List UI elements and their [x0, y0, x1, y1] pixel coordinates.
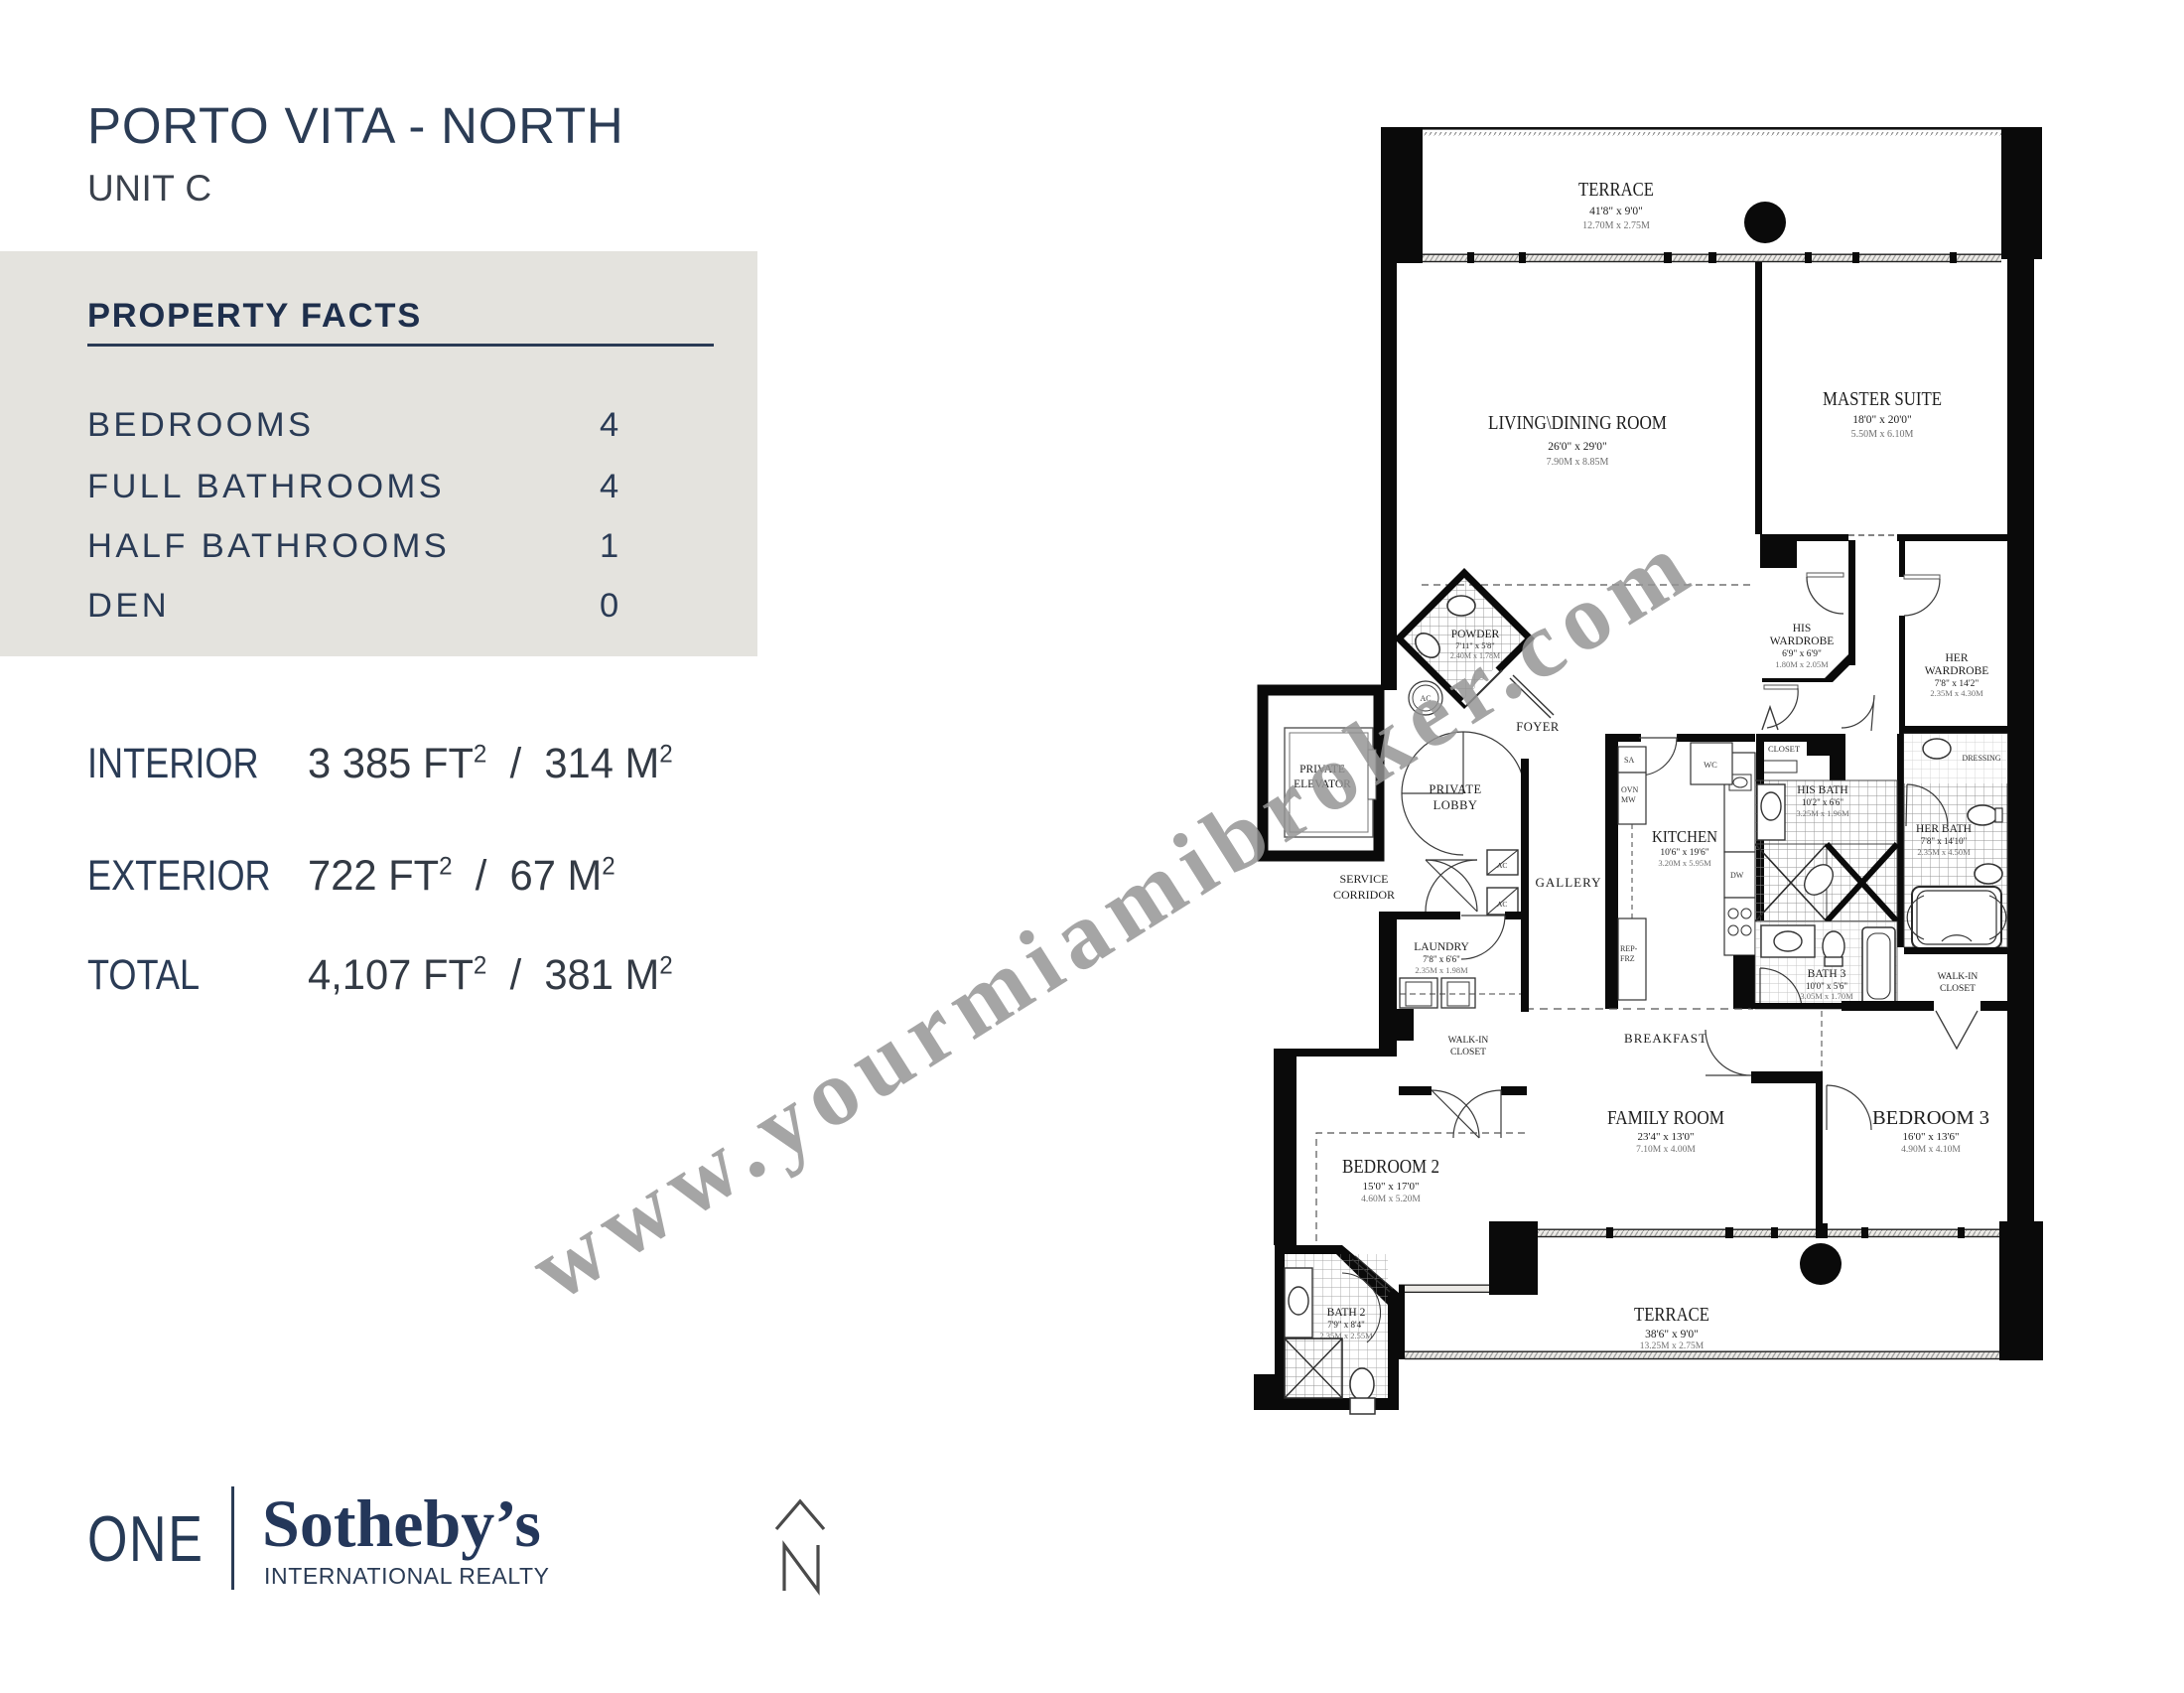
svg-text:ELEVATOR: ELEVATOR — [1294, 778, 1351, 790]
svg-text:DW: DW — [1730, 871, 1744, 880]
svg-text:WC: WC — [1704, 760, 1717, 770]
svg-text:12.70M x 2.75M: 12.70M x 2.75M — [1582, 220, 1650, 231]
svg-text:REP-: REP- — [1620, 944, 1638, 953]
svg-text:HIS BATH: HIS BATH — [1797, 784, 1847, 796]
svg-text:7.90M x 8.85M: 7.90M x 8.85M — [1547, 457, 1609, 468]
svg-text:41'8" x 9'0": 41'8" x 9'0" — [1589, 206, 1643, 217]
svg-text:5.50M x 6.10M: 5.50M x 6.10M — [1851, 429, 1914, 440]
svg-text:KITCHEN: KITCHEN — [1652, 827, 1717, 846]
svg-text:PRIVATE: PRIVATE — [1429, 782, 1481, 796]
svg-text:FAMILY ROOM: FAMILY ROOM — [1607, 1108, 1724, 1129]
svg-text:4.60M x 5.20M: 4.60M x 5.20M — [1361, 1195, 1421, 1204]
svg-text:2.35M x 1.98M: 2.35M x 1.98M — [1415, 965, 1468, 975]
svg-text:CLOSET: CLOSET — [1940, 984, 1976, 994]
svg-text:38'6" x 9'0": 38'6" x 9'0" — [1645, 1329, 1699, 1340]
svg-text:WALK-IN: WALK-IN — [1938, 972, 1979, 982]
svg-text:15'0" x 17'0": 15'0" x 17'0" — [1363, 1181, 1420, 1193]
svg-text:10'0" x 5'6": 10'0" x 5'6" — [1806, 981, 1847, 991]
svg-text:10'6" x 19'6": 10'6" x 19'6" — [1660, 848, 1708, 858]
svg-text:POWDER: POWDER — [1451, 629, 1500, 640]
svg-text:10'2" x 6'6": 10'2" x 6'6" — [1802, 797, 1843, 807]
svg-text:HIS: HIS — [1793, 623, 1812, 635]
svg-text:AC: AC — [1497, 900, 1507, 909]
svg-text:WARDROBE: WARDROBE — [1925, 665, 1989, 677]
svg-text:13.25M x 2.75M: 13.25M x 2.75M — [1640, 1341, 1705, 1351]
svg-text:7'8" x 14'10": 7'8" x 14'10" — [1921, 836, 1968, 846]
svg-text:GALLERY: GALLERY — [1536, 875, 1602, 890]
svg-text:HER BATH: HER BATH — [1916, 823, 1972, 835]
svg-text:AC: AC — [1497, 861, 1507, 870]
svg-text:3.20M x 5.95M: 3.20M x 5.95M — [1658, 858, 1711, 868]
svg-text:CORRIDOR: CORRIDOR — [1333, 888, 1395, 902]
svg-text:2.35M x 4.30M: 2.35M x 4.30M — [1930, 688, 1983, 698]
svg-text:HER: HER — [1946, 652, 1969, 664]
svg-text:7.10M x 4.00M: 7.10M x 4.00M — [1636, 1145, 1696, 1155]
svg-text:DRESSING: DRESSING — [1962, 754, 2000, 763]
svg-text:LAUNDRY: LAUNDRY — [1414, 941, 1469, 953]
svg-text:7'9" x 8'4": 7'9" x 8'4" — [1327, 1320, 1365, 1330]
svg-text:BEDROOM 2: BEDROOM 2 — [1342, 1157, 1439, 1178]
svg-text:CLOSET: CLOSET — [1450, 1048, 1486, 1058]
svg-text:BREAKFAST: BREAKFAST — [1624, 1031, 1707, 1046]
svg-text:TERRACE: TERRACE — [1578, 180, 1654, 201]
svg-text:LOBBY: LOBBY — [1433, 798, 1478, 812]
svg-text:SERVICE: SERVICE — [1339, 872, 1388, 886]
svg-text:MW: MW — [1621, 795, 1636, 804]
svg-text:3.25M x 1.96M: 3.25M x 1.96M — [1796, 808, 1849, 818]
svg-text:23'4" x 13'0": 23'4" x 13'0" — [1638, 1131, 1695, 1143]
svg-text:WARDROBE: WARDROBE — [1770, 635, 1835, 647]
svg-text:4.90M x 4.10M: 4.90M x 4.10M — [1901, 1145, 1961, 1155]
svg-text:7'11" x 5'8": 7'11" x 5'8" — [1455, 640, 1494, 650]
svg-text:WALK-IN: WALK-IN — [1448, 1036, 1489, 1046]
svg-text:CLOSET: CLOSET — [1768, 744, 1801, 754]
svg-text:FRZ: FRZ — [1620, 954, 1635, 963]
svg-text:7'8" x 6'6": 7'8" x 6'6" — [1423, 954, 1460, 964]
svg-text:AC: AC — [1420, 694, 1431, 703]
svg-text:26'0" x 29'0": 26'0" x 29'0" — [1548, 441, 1607, 453]
svg-text:FOYER: FOYER — [1516, 720, 1560, 734]
svg-text:2.35M x 4.50M: 2.35M x 4.50M — [1917, 847, 1971, 857]
svg-text:BEDROOM 3: BEDROOM 3 — [1872, 1108, 1989, 1129]
svg-text:18'0" x 20'0": 18'0" x 20'0" — [1852, 414, 1912, 426]
svg-text:LIVING\DINING ROOM: LIVING\DINING ROOM — [1488, 413, 1667, 434]
svg-text:MASTER SUITE: MASTER SUITE — [1823, 389, 1942, 410]
svg-text:2.40M x 1.78M: 2.40M x 1.78M — [1450, 651, 1500, 660]
svg-text:6'9" x 6'9": 6'9" x 6'9" — [1782, 649, 1822, 659]
svg-text:3.05M x 1.70M: 3.05M x 1.70M — [1800, 991, 1853, 1001]
svg-text:TERRACE: TERRACE — [1634, 1305, 1709, 1326]
svg-text:PRIVATE: PRIVATE — [1299, 764, 1345, 776]
svg-text:SA: SA — [1624, 756, 1634, 765]
svg-text:BATH 2: BATH 2 — [1327, 1307, 1366, 1319]
svg-text:1.80M x 2.05M: 1.80M x 2.05M — [1775, 659, 1829, 669]
svg-text:BATH 3: BATH 3 — [1808, 968, 1846, 980]
svg-text:OVN: OVN — [1621, 785, 1639, 794]
svg-text:16'0" x 13'6": 16'0" x 13'6" — [1903, 1131, 1960, 1143]
